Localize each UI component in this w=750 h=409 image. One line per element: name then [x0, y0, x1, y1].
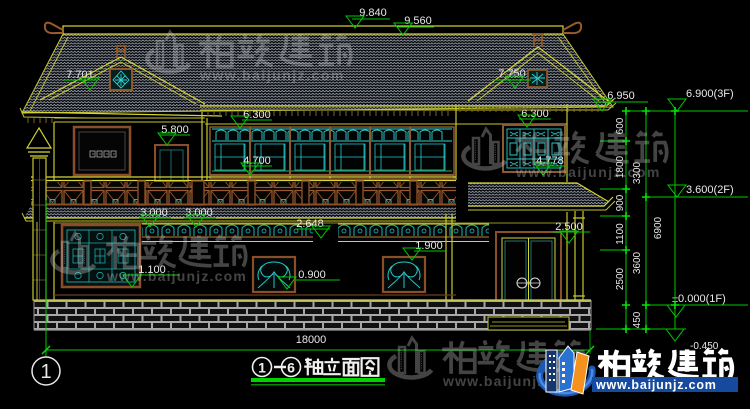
svg-text:6900: 6900 [653, 216, 664, 239]
svg-text:18000: 18000 [296, 334, 327, 346]
svg-text:3600: 3600 [632, 251, 643, 274]
svg-text:900: 900 [615, 194, 626, 211]
svg-text:±0.000(1F): ±0.000(1F) [672, 293, 726, 305]
svg-text:2500: 2500 [615, 267, 626, 290]
svg-text:www.baijunjz.com: www.baijunjz.com [515, 164, 661, 180]
svg-text:-0.450: -0.450 [690, 341, 719, 352]
svg-text:6: 6 [287, 360, 295, 376]
svg-text:www.baijunjz.com: www.baijunjz.com [106, 268, 247, 284]
svg-text:3.600(2F): 3.600(2F) [686, 184, 734, 196]
svg-text:1: 1 [258, 360, 266, 376]
svg-text:6.950: 6.950 [607, 90, 635, 102]
svg-text:3.000: 3.000 [140, 207, 168, 219]
svg-text:7.750: 7.750 [498, 68, 526, 80]
svg-text:0.900: 0.900 [298, 269, 326, 281]
svg-text:2.648: 2.648 [296, 218, 324, 230]
svg-text:1100: 1100 [615, 223, 626, 245]
svg-text:3.000: 3.000 [185, 207, 213, 219]
svg-text:1: 1 [40, 361, 51, 383]
svg-text:7.701: 7.701 [66, 69, 94, 81]
svg-text:www.baijunjz.com: www.baijunjz.com [595, 378, 717, 392]
svg-text:9.560: 9.560 [404, 15, 432, 27]
svg-text:450: 450 [632, 311, 643, 328]
svg-text:6.900(3F): 6.900(3F) [686, 88, 734, 100]
svg-text:6.300: 6.300 [243, 109, 271, 121]
svg-text:6.300: 6.300 [521, 108, 549, 120]
svg-text:www.baijunjz.com: www.baijunjz.com [199, 67, 345, 83]
